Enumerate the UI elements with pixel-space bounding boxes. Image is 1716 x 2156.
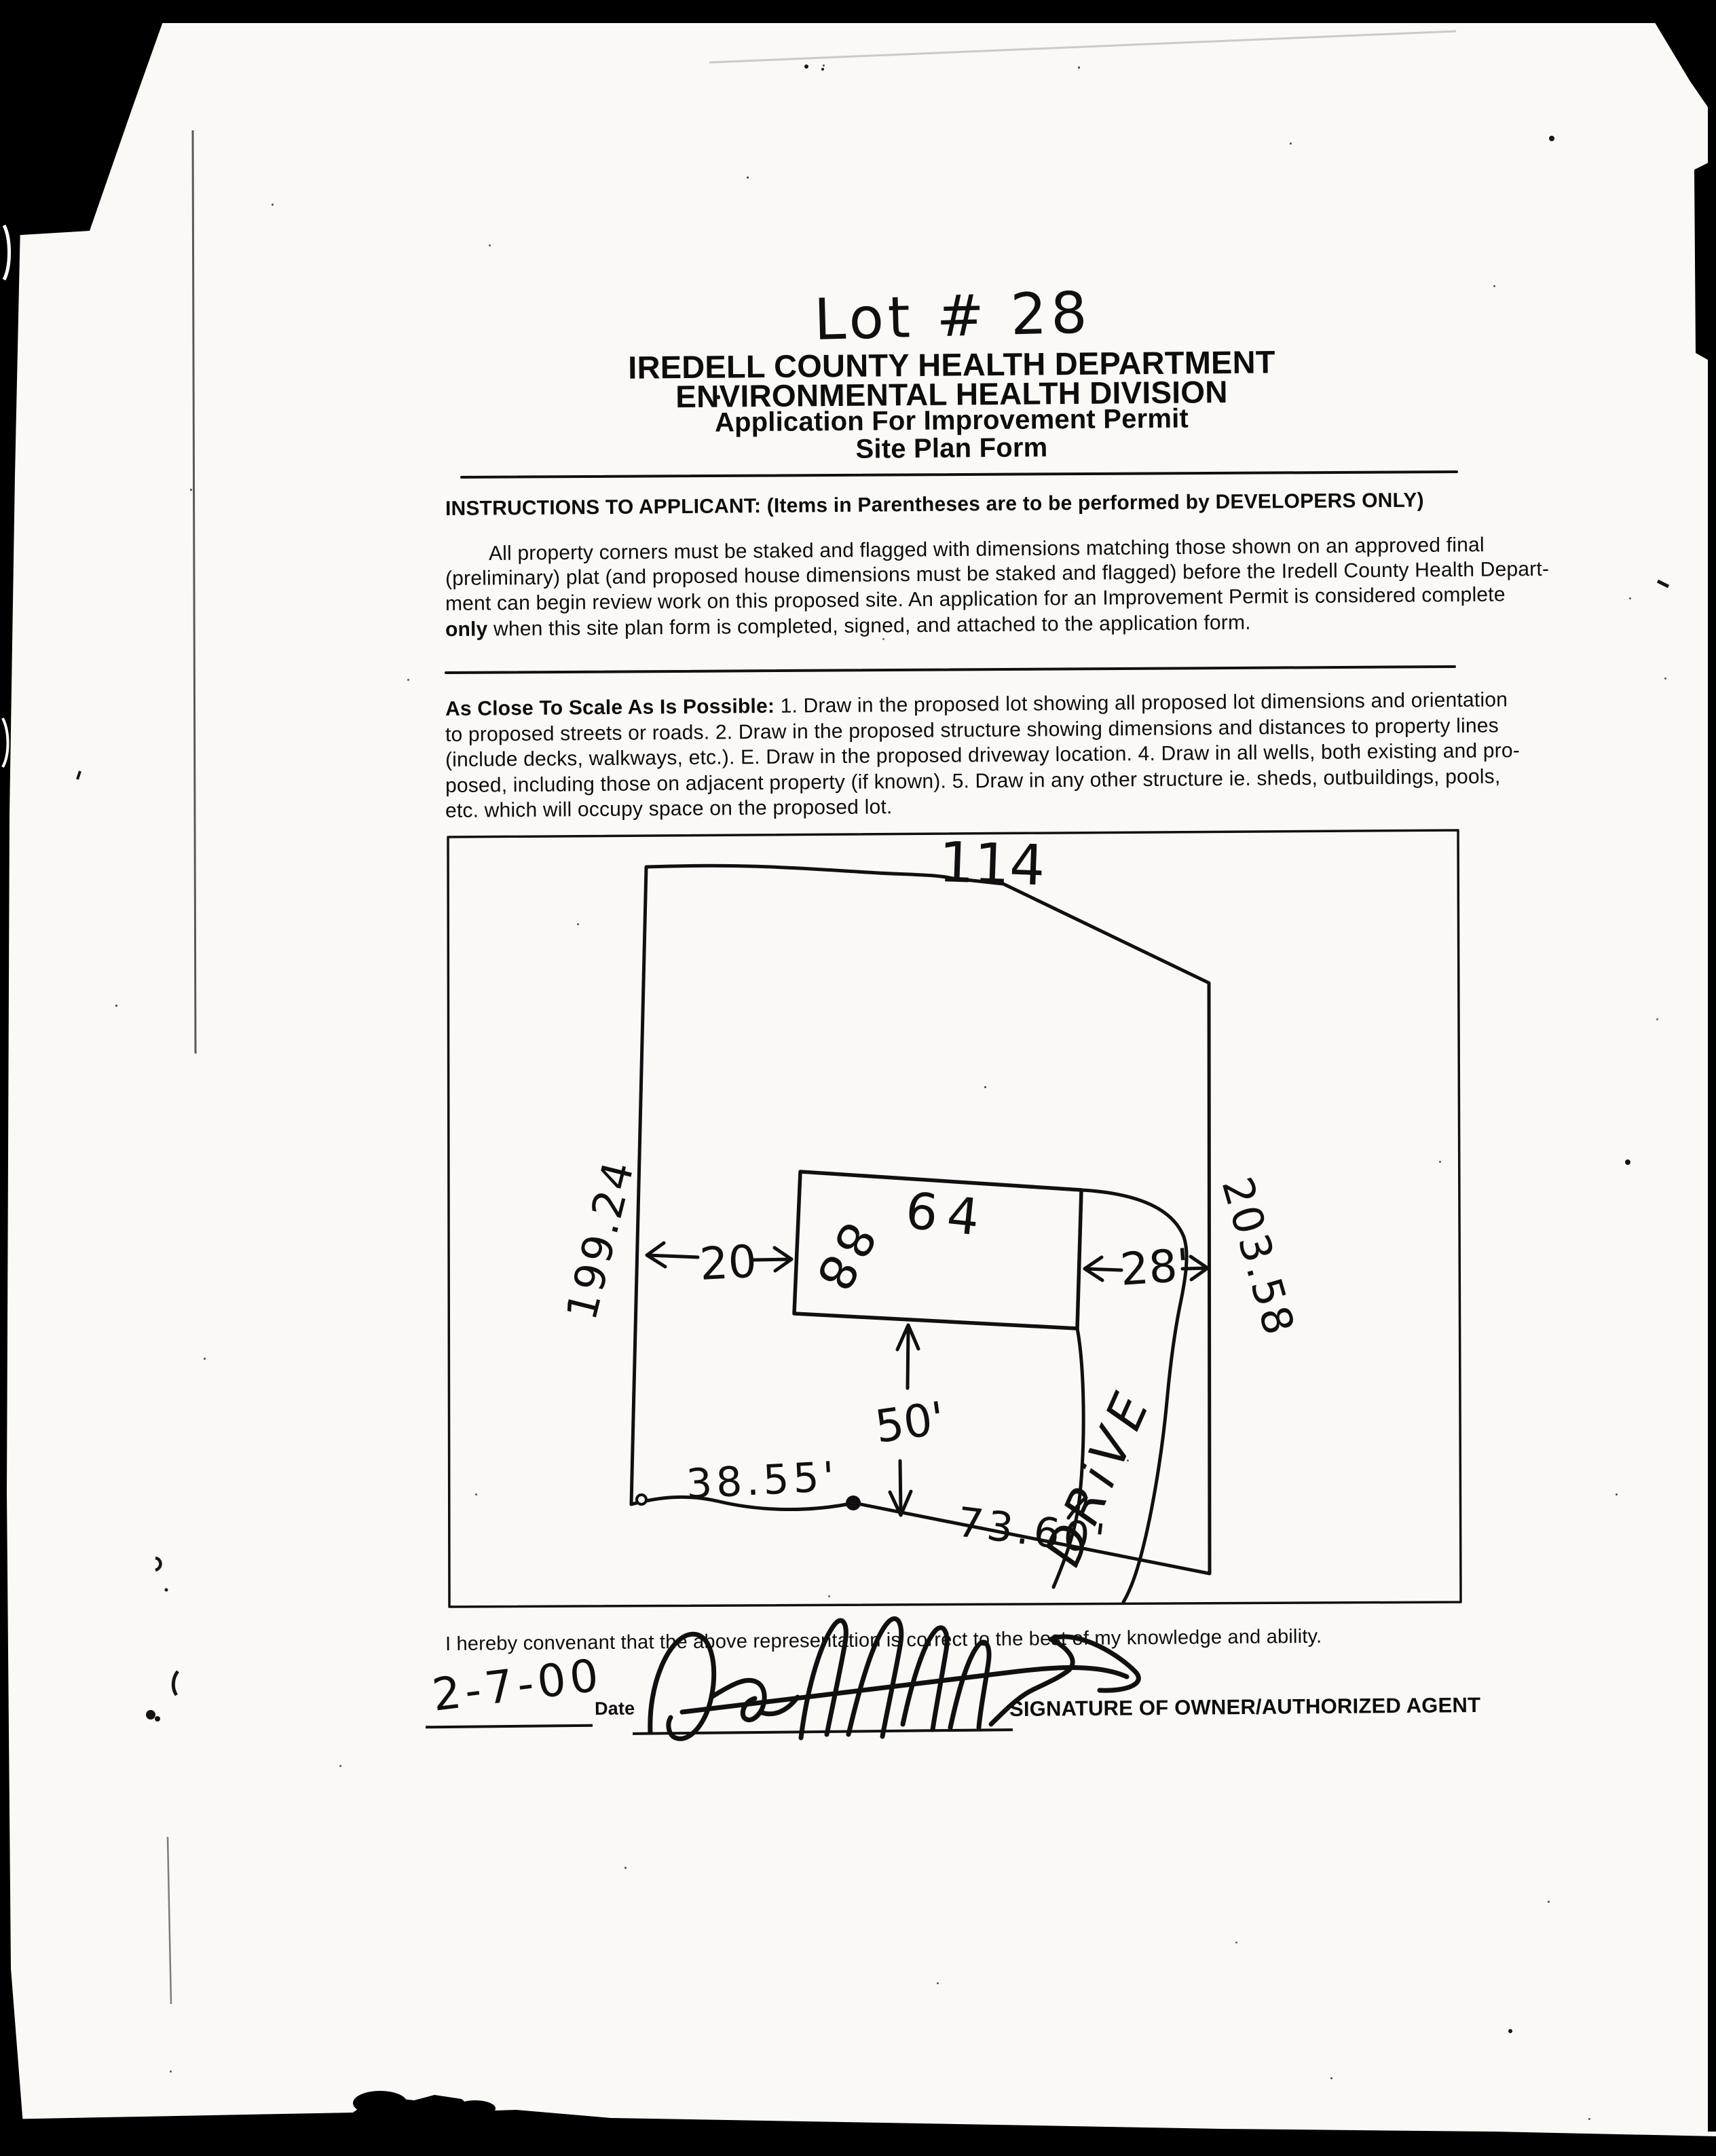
margin-stray-dots <box>146 64 1630 2033</box>
scan-edge-artifacts <box>0 0 1716 2156</box>
page-fold-line <box>193 130 195 1054</box>
margin-stray-marks <box>77 581 1668 1695</box>
scan-border-left <box>0 20 27 2125</box>
scan-corner-top-right <box>1654 18 1716 119</box>
scan-border-top <box>0 0 1716 23</box>
scan-edge-tear-right <box>1694 163 1708 360</box>
page-fold-line-lower <box>168 1837 171 2004</box>
scan-blob-bottom <box>353 2091 407 2115</box>
scan-border-bottom <box>0 2095 1716 2156</box>
scan-blob-bottom <box>455 2100 496 2117</box>
torn-edge-shadow <box>709 31 1456 62</box>
scanned-site-plan-form: IREDELL COUNTY HEALTH DEPARTMENT ENVIRON… <box>0 0 1716 2156</box>
scan-border-right <box>1708 24 1716 2132</box>
